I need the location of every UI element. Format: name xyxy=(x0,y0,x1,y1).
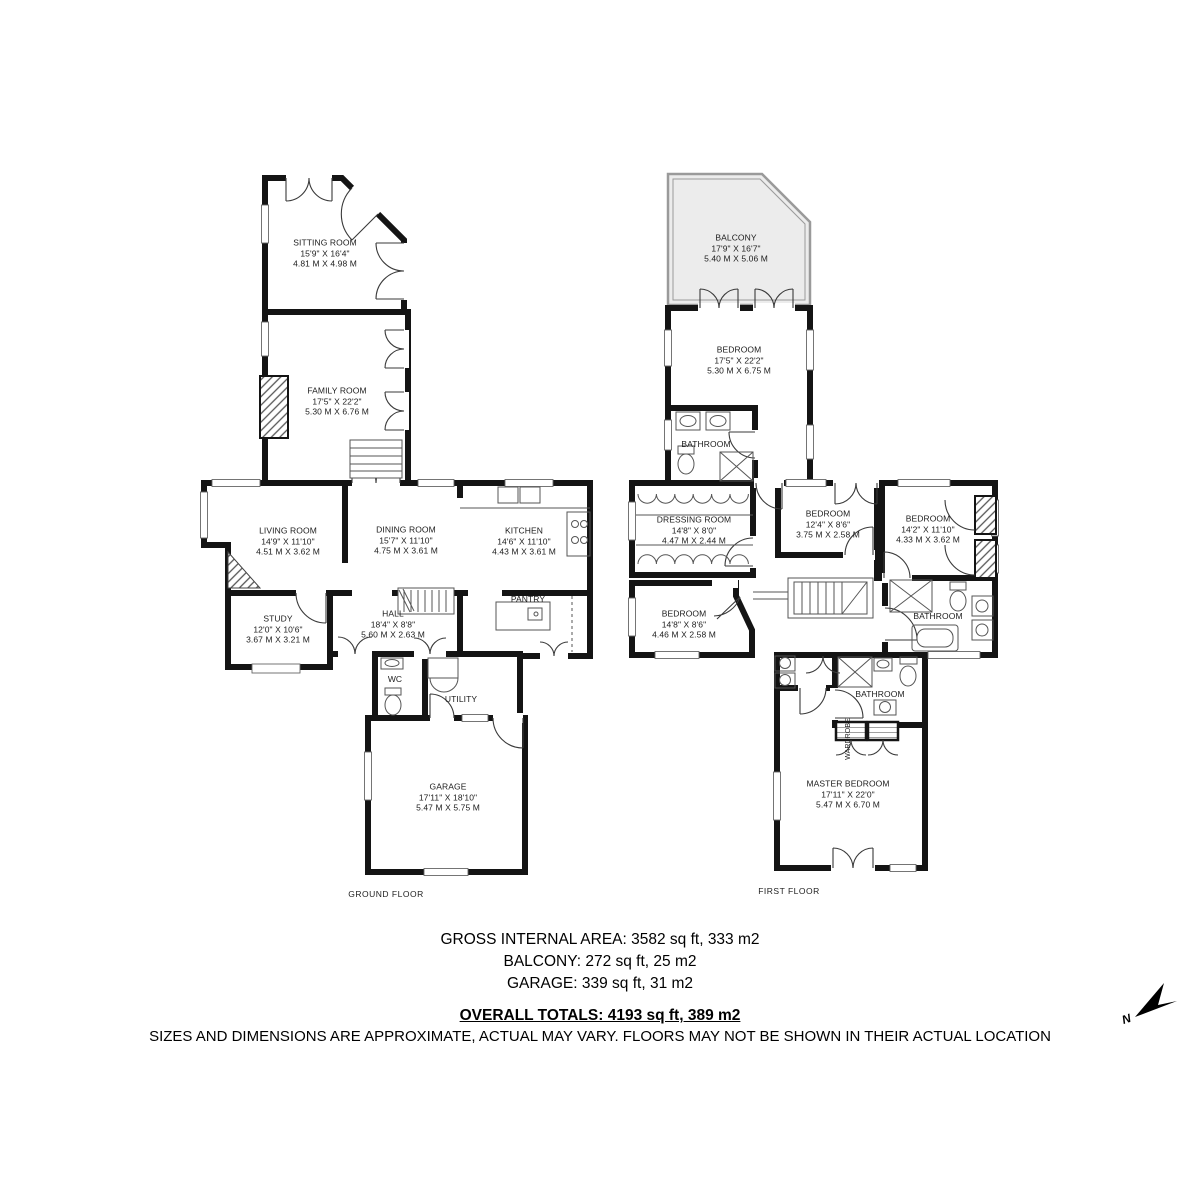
room-dim-imperial: 14'8" X 8'6" xyxy=(652,619,716,630)
disclaimer-text: SIZES AND DIMENSIONS ARE APPROXIMATE, AC… xyxy=(0,1028,1200,1045)
room-label-sitting: SITTING ROOM 15'9" X 16'4" 4.81 M X 4.98… xyxy=(293,237,357,269)
room-name: GARAGE xyxy=(416,781,480,792)
room-name: BATHROOM xyxy=(855,689,904,700)
room-name: SITTING ROOM xyxy=(293,237,357,248)
room-name: BEDROOM xyxy=(796,508,860,519)
room-dim-imperial: 12'0" X 10'6" xyxy=(246,624,310,635)
room-label-kitchen: KITCHEN 14'6" X 11'10" 4.43 M X 3.61 M xyxy=(492,525,556,557)
room-label-garage: GARAGE 17'11" X 18'10" 5.47 M X 5.75 M xyxy=(416,781,480,813)
room-label-dressing: DRESSING ROOM 14'8" X 8'0" 4.47 M X 2.44… xyxy=(657,514,732,546)
room-name: LIVING ROOM xyxy=(256,525,320,536)
room-label-master: MASTER BEDROOM 17'11" X 22'0" 5.47 M X 6… xyxy=(806,778,889,810)
stairs-first xyxy=(753,578,873,618)
room-name: WC xyxy=(388,674,402,685)
room-label-utility: UTILITY xyxy=(445,694,477,705)
room-dim-imperial: 17'11" X 18'10" xyxy=(416,792,480,803)
room-dim-imperial: 15'9" X 16'4" xyxy=(293,248,357,259)
room-label-wc: WC xyxy=(388,674,402,685)
floorplan-page: SITTING ROOM 15'9" X 16'4" 4.81 M X 4.98… xyxy=(0,0,1200,1200)
fireplace-family-room xyxy=(260,376,288,438)
room-dim-metric: 4.75 M X 3.61 M xyxy=(374,545,438,556)
room-name: FAMILY ROOM xyxy=(305,385,369,396)
room-name: BEDROOM xyxy=(896,513,960,524)
room-label-family: FAMILY ROOM 17'5" X 22'2" 5.30 M X 6.76 … xyxy=(305,385,369,417)
room-label-pantry: PANTRY xyxy=(511,594,545,605)
room-dim-metric: 5.30 M X 6.76 M xyxy=(305,406,369,417)
room-dim-imperial: 17'9" X 16'7" xyxy=(704,243,768,254)
room-dim-metric: 5.40 M X 5.06 M xyxy=(704,253,768,264)
room-dim-imperial: 14'9" X 11'10" xyxy=(256,536,320,547)
room-name: MASTER BEDROOM xyxy=(806,778,889,789)
area-summary: GROSS INTERNAL AREA: 3582 sq ft, 333 m2 … xyxy=(0,929,1200,1045)
room-name: DINING ROOM xyxy=(374,524,438,535)
overall-totals-text: OVERALL TOTALS: 4193 sq ft, 389 m2 xyxy=(460,1006,741,1026)
room-dim-imperial: 14'6" X 11'10" xyxy=(492,536,556,547)
room-name: WARDROBE xyxy=(844,718,855,760)
room-dim-metric: 5.47 M X 5.75 M xyxy=(416,802,480,813)
room-dim-metric: 5.60 M X 2.63 M xyxy=(361,629,425,640)
room-name: PANTRY xyxy=(511,594,545,605)
room-label-balcony: BALCONY 17'9" X 16'7" 5.40 M X 5.06 M xyxy=(704,232,768,264)
room-dim-metric: 4.51 M X 3.62 M xyxy=(256,546,320,557)
room-label-dining: DINING ROOM 15'7" X 11'10" 4.75 M X 3.61… xyxy=(374,524,438,556)
room-label-bathroom-main: BATHROOM xyxy=(913,611,962,622)
room-dim-metric: 4.43 M X 3.61 M xyxy=(492,546,556,557)
garage-area-text: GARAGE: 339 sq ft, 31 m2 xyxy=(0,973,1200,995)
room-dim-imperial: 14'2" X 11'10" xyxy=(896,524,960,535)
room-dim-metric: 4.46 M X 2.58 M xyxy=(652,629,716,640)
room-dim-imperial: 18'4" X 8'8" xyxy=(361,619,425,630)
first-floor-label: FIRST FLOOR xyxy=(758,886,820,896)
room-label-bedroom1: BEDROOM 17'5" X 22'2" 5.30 M X 6.75 M xyxy=(707,344,771,376)
room-dim-imperial: 17'5" X 22'2" xyxy=(707,355,771,366)
ground-floor-label: GROUND FLOOR xyxy=(348,889,423,899)
balcony-area-text: BALCONY: 272 sq ft, 25 m2 xyxy=(0,951,1200,973)
room-dim-metric: 4.33 M X 3.62 M xyxy=(896,534,960,545)
gross-internal-area-text: GROSS INTERNAL AREA: 3582 sq ft, 333 m2 xyxy=(0,929,1200,951)
room-name: BATHROOM xyxy=(681,439,730,450)
room-label-bedroom4: BEDROOM 14'8" X 8'6" 4.46 M X 2.58 M xyxy=(652,608,716,640)
room-name: BEDROOM xyxy=(707,344,771,355)
room-name: DRESSING ROOM xyxy=(657,514,732,525)
room-name: HALL xyxy=(361,608,425,619)
room-dim-metric: 3.75 M X 2.58 M xyxy=(796,529,860,540)
room-label-wardrobe: WARDROBE xyxy=(844,718,855,760)
room-name: BEDROOM xyxy=(652,608,716,619)
room-name: BALCONY xyxy=(704,232,768,243)
room-label-living: LIVING ROOM 14'9" X 11'10" 4.51 M X 3.62… xyxy=(256,525,320,557)
room-dim-metric: 5.30 M X 6.75 M xyxy=(707,365,771,376)
room-label-bedroom3: BEDROOM 14'2" X 11'10" 4.33 M X 3.62 M xyxy=(896,513,960,545)
room-name: STUDY xyxy=(246,613,310,624)
room-label-bathroom-master: BATHROOM xyxy=(855,689,904,700)
room-name: BATHROOM xyxy=(913,611,962,622)
room-dim-metric: 4.81 M X 4.98 M xyxy=(293,258,357,269)
room-dim-imperial: 17'11" X 22'0" xyxy=(806,789,889,800)
room-name: UTILITY xyxy=(445,694,477,705)
room-dim-imperial: 14'8" X 8'0" xyxy=(657,525,732,536)
room-label-hall: HALL 18'4" X 8'8" 5.60 M X 2.63 M xyxy=(361,608,425,640)
room-dim-imperial: 15'7" X 11'10" xyxy=(374,535,438,546)
room-dim-imperial: 17'5" X 22'2" xyxy=(305,396,369,407)
room-label-study: STUDY 12'0" X 10'6" 3.67 M X 3.21 M xyxy=(246,613,310,645)
room-label-bedroom2: BEDROOM 12'4" X 8'6" 3.75 M X 2.58 M xyxy=(796,508,860,540)
room-name: KITCHEN xyxy=(492,525,556,536)
room-dim-imperial: 12'4" X 8'6" xyxy=(796,519,860,530)
room-dim-metric: 4.47 M X 2.44 M xyxy=(657,535,732,546)
room-dim-metric: 5.47 M X 6.70 M xyxy=(806,799,889,810)
room-label-bathroom-ensuite: BATHROOM xyxy=(681,439,730,450)
room-dim-metric: 3.67 M X 3.21 M xyxy=(246,634,310,645)
